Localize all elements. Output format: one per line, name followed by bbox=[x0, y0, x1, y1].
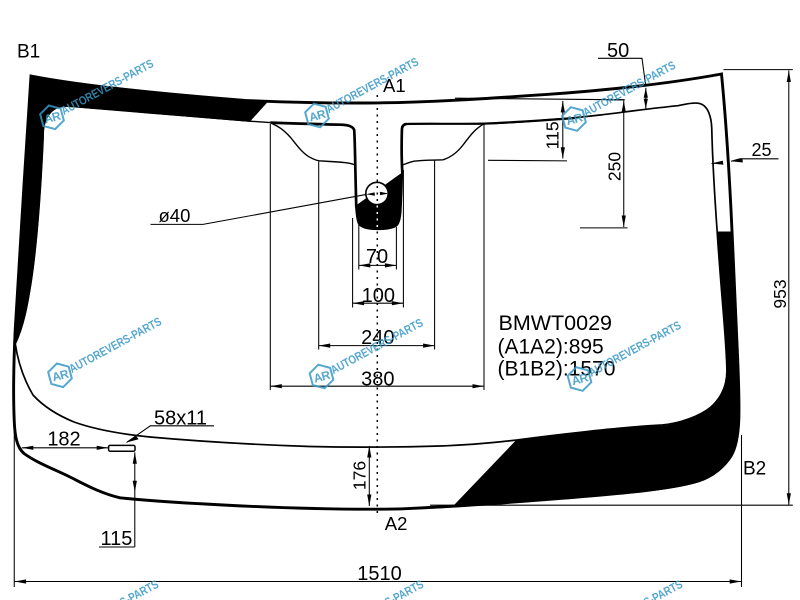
svg-text:1510: 1510 bbox=[357, 563, 402, 585]
svg-text:115: 115 bbox=[101, 528, 133, 550]
svg-text:100: 100 bbox=[362, 285, 395, 307]
svg-text:50: 50 bbox=[607, 40, 629, 62]
svg-text:176: 176 bbox=[350, 461, 370, 490]
svg-text:380: 380 bbox=[361, 369, 394, 391]
svg-text:(A1A2):895: (A1A2):895 bbox=[498, 336, 604, 359]
svg-text:25: 25 bbox=[752, 140, 772, 160]
svg-text:ø40: ø40 bbox=[159, 205, 191, 226]
svg-text:B1: B1 bbox=[17, 42, 40, 63]
svg-text:58x11: 58x11 bbox=[154, 408, 207, 430]
svg-text:115: 115 bbox=[542, 121, 562, 149]
svg-text:A2: A2 bbox=[385, 513, 408, 534]
svg-text:BMWT0029: BMWT0029 bbox=[499, 311, 613, 335]
svg-text:953: 953 bbox=[770, 279, 790, 308]
svg-text:250: 250 bbox=[604, 152, 624, 181]
svg-text:B2: B2 bbox=[743, 459, 766, 480]
svg-text:70: 70 bbox=[366, 246, 388, 268]
svg-text:182: 182 bbox=[47, 428, 80, 450]
